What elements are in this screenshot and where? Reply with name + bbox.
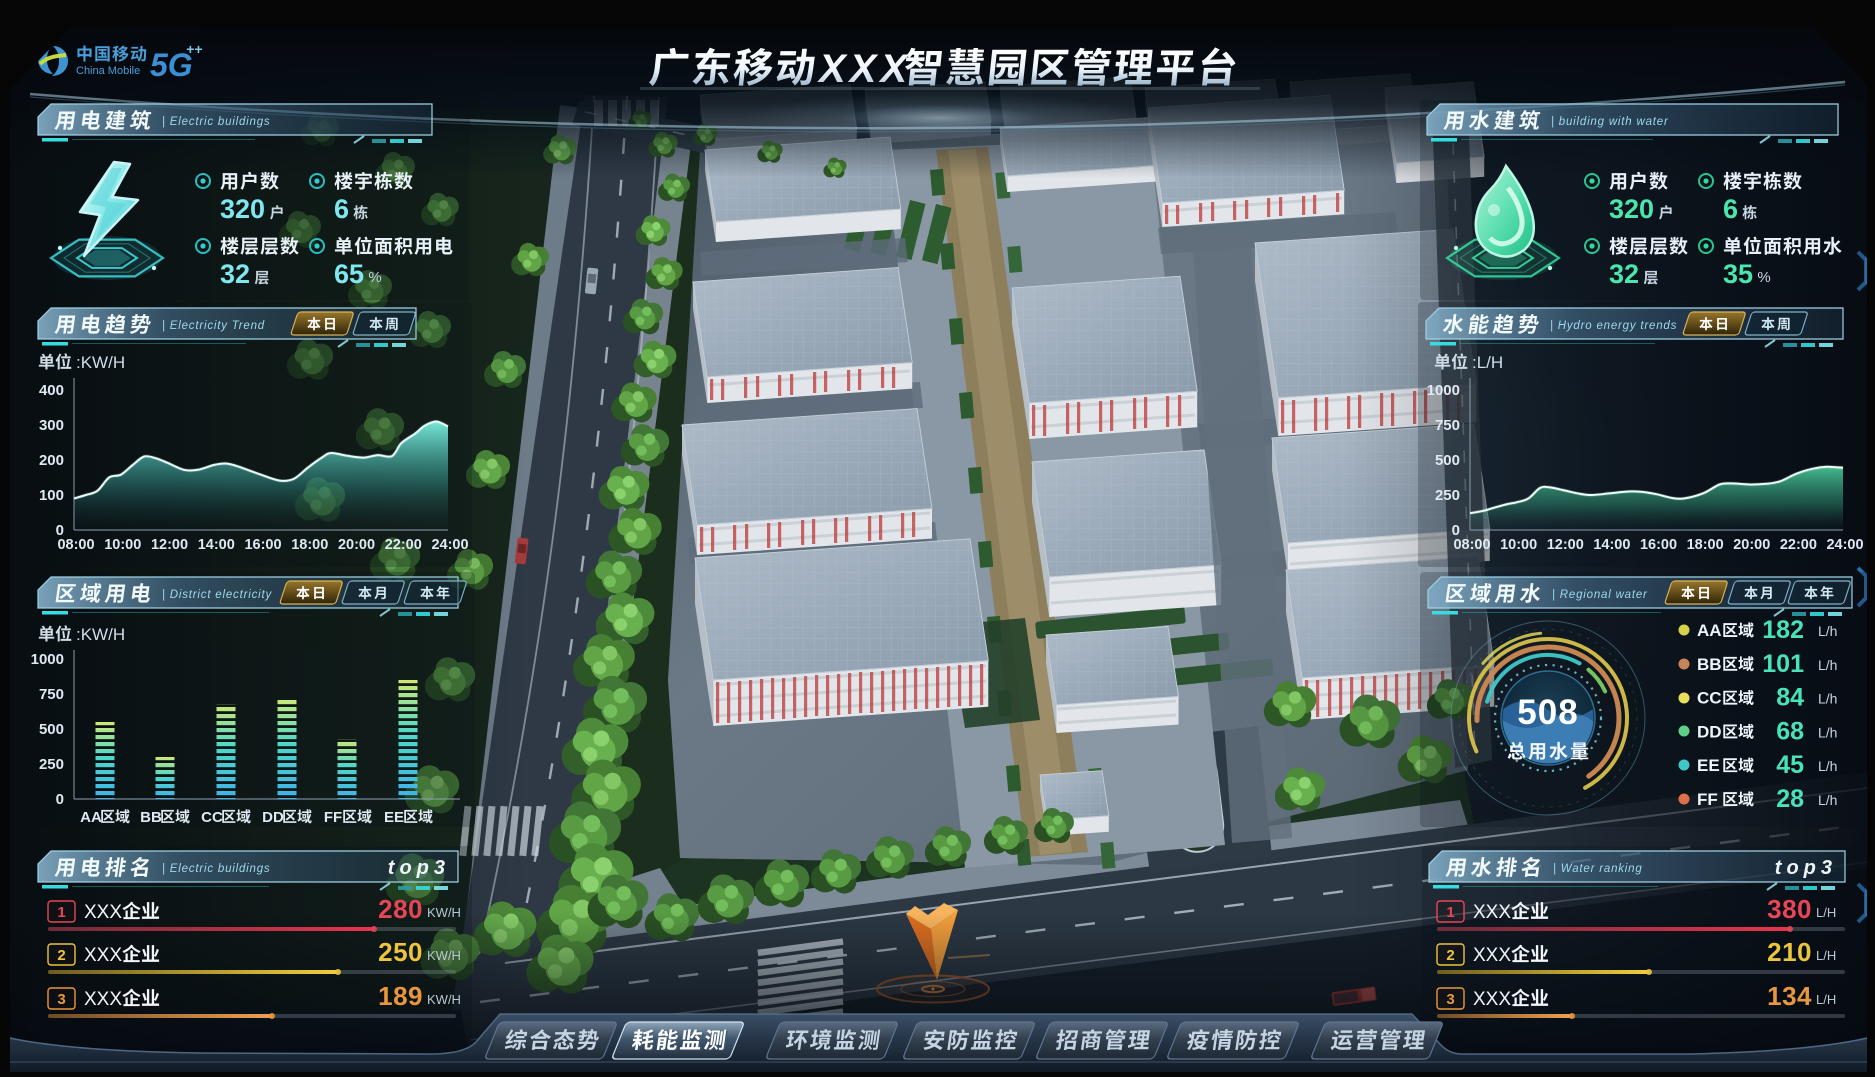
svg-text:| Electric buildings: | Electric buildings (162, 116, 270, 128)
svg-text:1000: 1000 (1427, 382, 1460, 399)
svg-text:300: 300 (39, 417, 64, 434)
svg-text:| Water ranking: | Water ranking (1553, 863, 1643, 875)
svg-text:KW/H: KW/H (427, 992, 461, 1007)
svg-text:L/h: L/h (1818, 657, 1837, 673)
svg-text::KW/H: :KW/H (76, 625, 125, 644)
svg-text:134: 134 (1767, 981, 1812, 1011)
svg-text:L/h: L/h (1818, 758, 1837, 774)
svg-text:24:00: 24:00 (431, 537, 468, 553)
svg-text:FF: FF (1697, 790, 1718, 809)
svg-text:0: 0 (56, 791, 64, 808)
svg-text:12:00: 12:00 (151, 537, 188, 553)
svg-text:10:00: 10:00 (104, 537, 141, 553)
svg-text:| Electric buildings: | Electric buildings (162, 863, 270, 875)
svg-text:22:00: 22:00 (385, 537, 422, 553)
svg-text:101: 101 (1762, 650, 1804, 678)
svg-text:XXX: XXX (84, 945, 122, 966)
svg-text:16:00: 16:00 (1640, 537, 1677, 553)
svg-text:XXX: XXX (1473, 945, 1511, 966)
svg-text:XXX: XXX (1473, 989, 1511, 1010)
svg-text:| Hydro energy trends: | Hydro energy trends (1550, 320, 1677, 332)
svg-text:XXX: XXX (1473, 902, 1511, 923)
svg-text:200: 200 (39, 452, 64, 469)
svg-text:top3: top3 (388, 857, 450, 879)
svg-text:20:00: 20:00 (1733, 537, 1770, 553)
svg-text:10:00: 10:00 (1500, 537, 1537, 553)
svg-text:1: 1 (1446, 904, 1454, 921)
svg-text:EE: EE (384, 809, 404, 826)
svg-text:182: 182 (1762, 616, 1804, 644)
svg-text:CC: CC (201, 809, 223, 826)
svg-text:189: 189 (378, 981, 423, 1011)
svg-text:84: 84 (1776, 684, 1804, 712)
svg-text:18:00: 18:00 (1687, 537, 1724, 553)
svg-text:45: 45 (1776, 751, 1804, 779)
svg-text::KW/H: :KW/H (76, 353, 125, 372)
svg-text:08:00: 08:00 (57, 537, 94, 553)
svg-text:18:00: 18:00 (291, 537, 328, 553)
svg-text:32: 32 (220, 259, 250, 289)
svg-text:DD: DD (1697, 722, 1722, 741)
svg-text:14:00: 14:00 (1593, 537, 1630, 553)
svg-text:BB: BB (140, 809, 162, 826)
svg-text:750: 750 (1435, 417, 1460, 434)
svg-text:210: 210 (1767, 937, 1812, 967)
svg-text:508: 508 (1517, 693, 1578, 732)
svg-text:6: 6 (334, 194, 349, 224)
svg-text:100: 100 (39, 487, 64, 504)
svg-text:++: ++ (186, 41, 202, 57)
svg-text:1: 1 (57, 904, 65, 921)
svg-text:%: % (1757, 269, 1770, 286)
svg-text:L/h: L/h (1818, 792, 1837, 808)
svg-text:%: % (368, 269, 381, 286)
svg-text:China Mobile: China Mobile (76, 65, 140, 77)
svg-text:500: 500 (39, 721, 64, 738)
svg-text:L/h: L/h (1818, 724, 1837, 740)
svg-text:380: 380 (1767, 894, 1812, 924)
svg-text:| building with water: | building with water (1551, 116, 1669, 128)
svg-text:2: 2 (1446, 947, 1454, 964)
svg-text:KW/H: KW/H (427, 948, 461, 963)
svg-text:XXX: XXX (817, 47, 911, 91)
svg-text:AA: AA (1697, 621, 1722, 640)
svg-text:FF: FF (324, 809, 342, 826)
svg-text:CC: CC (1697, 689, 1722, 708)
svg-text:6: 6 (1723, 194, 1738, 224)
svg-text:12:00: 12:00 (1547, 537, 1584, 553)
svg-text:35: 35 (1723, 259, 1753, 289)
svg-text:| Regional water: | Regional water (1552, 589, 1648, 601)
svg-text:| District electricity: | District electricity (162, 589, 272, 601)
svg-text:DD: DD (262, 809, 284, 826)
svg-text:28: 28 (1776, 785, 1804, 813)
svg-text:08:00: 08:00 (1453, 537, 1490, 553)
svg-text:750: 750 (39, 686, 64, 703)
svg-text:L/h: L/h (1818, 691, 1837, 707)
svg-text:250: 250 (1435, 487, 1460, 504)
svg-text:EE: EE (1697, 756, 1720, 775)
svg-text:400: 400 (39, 382, 64, 399)
svg-text:L/H: L/H (1816, 992, 1836, 1007)
svg-text:AA: AA (80, 809, 102, 826)
svg-text:20:00: 20:00 (338, 537, 375, 553)
svg-text:3: 3 (57, 991, 65, 1008)
svg-text:320: 320 (1609, 194, 1654, 224)
svg-text:22:00: 22:00 (1780, 537, 1817, 553)
svg-text:2: 2 (57, 947, 65, 964)
svg-text:14:00: 14:00 (198, 537, 235, 553)
svg-text:| Electricity Trend: | Electricity Trend (162, 320, 265, 332)
svg-text:280: 280 (378, 894, 423, 924)
svg-text:320: 320 (220, 194, 265, 224)
svg-text:68: 68 (1776, 717, 1804, 745)
svg-text:XXX: XXX (84, 989, 122, 1010)
svg-text:65: 65 (334, 259, 364, 289)
svg-text:500: 500 (1435, 452, 1460, 469)
svg-text:16:00: 16:00 (244, 537, 281, 553)
svg-text:L/H: L/H (1816, 948, 1836, 963)
svg-text:3: 3 (1446, 991, 1454, 1008)
svg-text:250: 250 (378, 937, 423, 967)
svg-text:250: 250 (39, 756, 64, 773)
svg-text:1000: 1000 (31, 651, 64, 668)
svg-text:24:00: 24:00 (1826, 537, 1863, 553)
svg-text::L/H: :L/H (1472, 353, 1503, 372)
svg-text:L/H: L/H (1816, 905, 1836, 920)
svg-text:XXX: XXX (84, 902, 122, 923)
svg-text:32: 32 (1609, 259, 1639, 289)
svg-text:BB: BB (1697, 655, 1722, 674)
svg-text:L/h: L/h (1818, 623, 1837, 639)
svg-text:KW/H: KW/H (427, 905, 461, 920)
svg-text:top3: top3 (1775, 857, 1837, 879)
